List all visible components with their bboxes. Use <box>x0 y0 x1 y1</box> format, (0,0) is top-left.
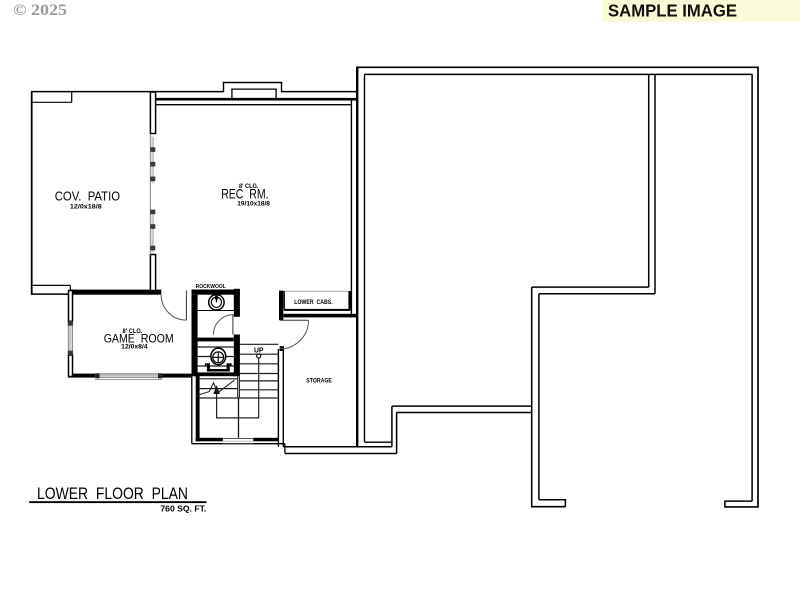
svg-text:19/10x18/8: 19/10x18/8 <box>237 200 270 207</box>
svg-text:COV. PATIO: COV. PATIO <box>55 189 120 204</box>
svg-text:UP: UP <box>254 347 264 354</box>
svg-text:12/0x8/4: 12/0x8/4 <box>121 344 148 351</box>
svg-text:© 2025: © 2025 <box>13 2 67 19</box>
svg-text:STORAGE: STORAGE <box>306 378 332 385</box>
svg-text:ROCKWOOL: ROCKWOOL <box>196 284 227 290</box>
svg-text:LOWER CABS.: LOWER CABS. <box>294 299 333 306</box>
svg-text:SAMPLE IMAGE: SAMPLE IMAGE <box>608 1 737 21</box>
svg-text:760 SQ. FT.: 760 SQ. FT. <box>160 505 206 514</box>
svg-text:LOWER FLOOR PLAN: LOWER FLOOR PLAN <box>37 485 188 503</box>
svg-text:12/0x18/8: 12/0x18/8 <box>70 203 102 210</box>
svg-text:REC RM.: REC RM. <box>221 186 268 202</box>
